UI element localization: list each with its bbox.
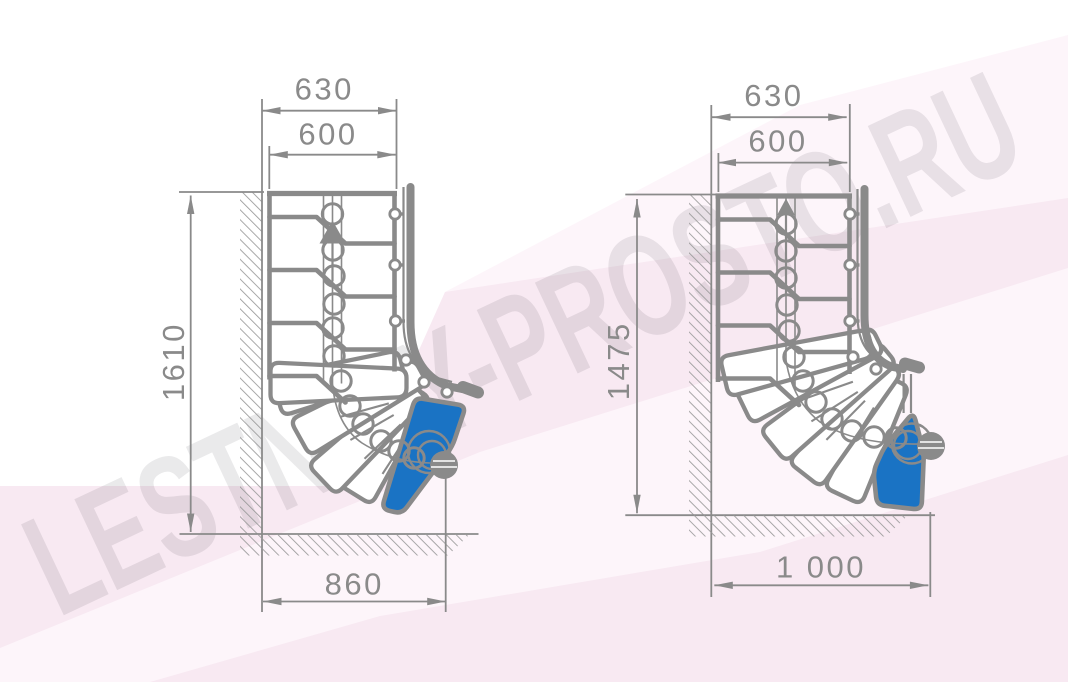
svg-text:1 000: 1 000 [776, 549, 866, 584]
svg-text:600: 600 [748, 124, 807, 159]
svg-text:630: 630 [295, 72, 354, 107]
svg-text:860: 860 [325, 566, 384, 601]
svg-text:600: 600 [298, 117, 357, 152]
svg-text:630: 630 [744, 78, 803, 113]
svg-text:1475: 1475 [601, 321, 636, 400]
svg-text:1610: 1610 [156, 322, 191, 401]
